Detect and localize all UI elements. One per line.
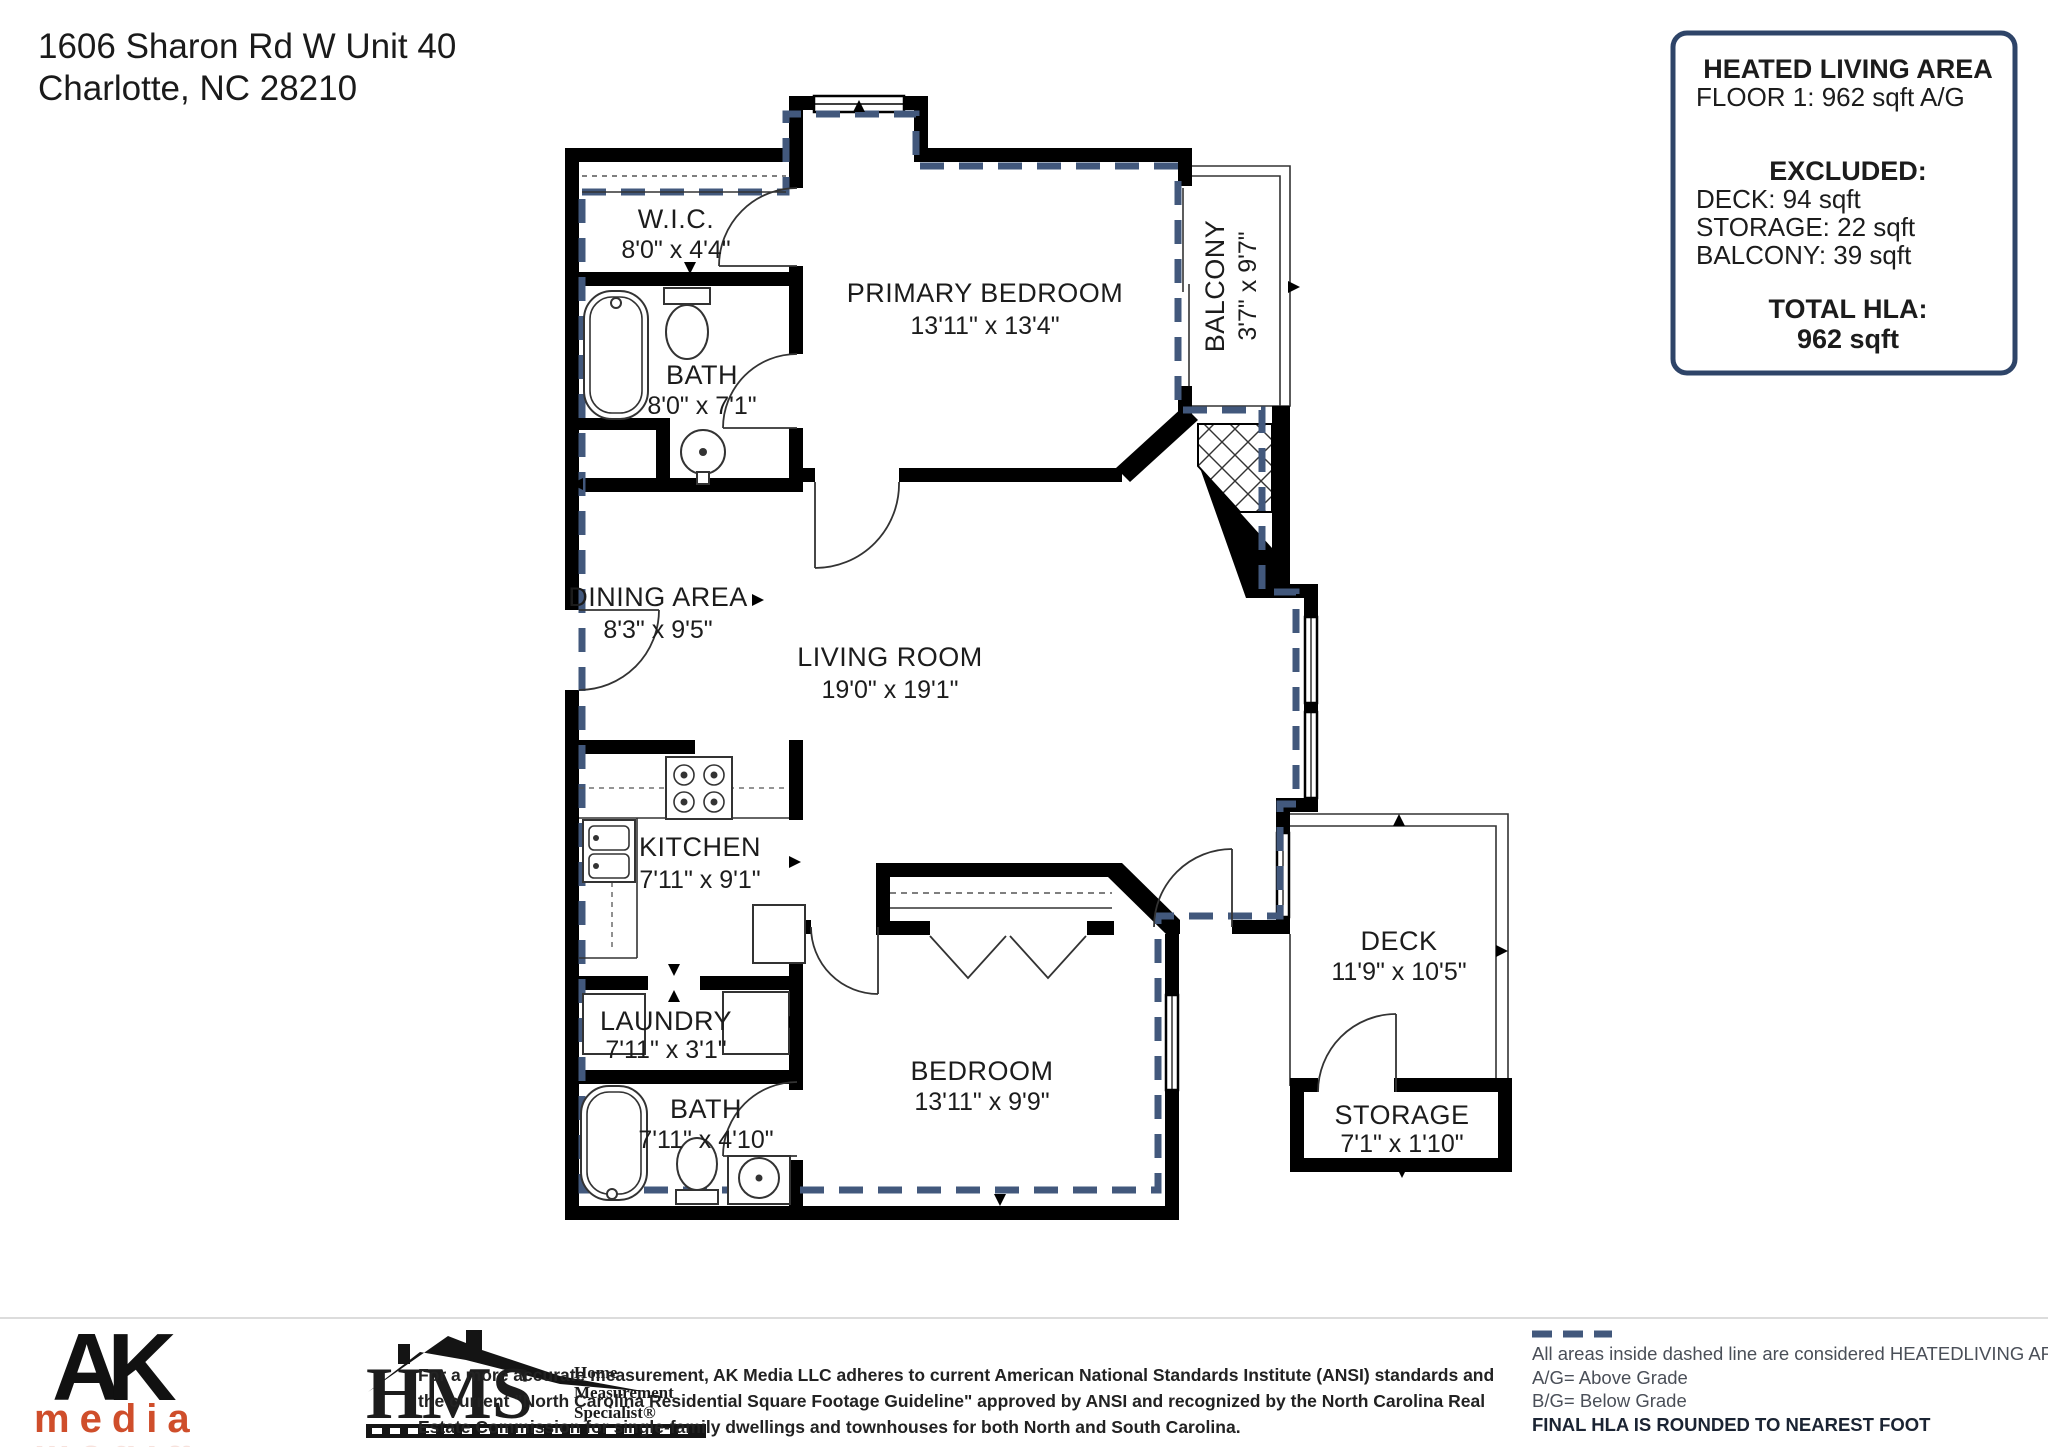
ak-logo-word-reflection: media	[34, 1437, 200, 1447]
hla-total-label: TOTAL HLA:	[1769, 294, 1928, 324]
room-dims-balcony: 3'7" x 9'7"	[1234, 231, 1262, 340]
disclaimer-line2: the current "North Carolina Residential …	[418, 1391, 1485, 1411]
disclaimer-line1: For a more accurate measurement, AK Medi…	[418, 1365, 1494, 1385]
legend-line1: All areas inside dashed line are conside…	[1532, 1343, 2048, 1364]
room-dims-bedroom: 13'11" x 9'9"	[914, 1088, 1049, 1116]
legend-line3: B/G= Below Grade	[1532, 1390, 1687, 1411]
hla-excluded-storage: STORAGE: 22 sqft	[1696, 212, 1916, 242]
room-dims-bath2: 7'11" x 4'10"	[638, 1126, 773, 1154]
room-label-bedroom: BEDROOM	[910, 1056, 1053, 1086]
floorplan-page: 1606 Sharon Rd W Unit 40 Charlotte, NC 2…	[0, 0, 2048, 1447]
hms-logo-h: H	[366, 1353, 424, 1435]
room-label-balcony: BALCONY	[1200, 220, 1230, 353]
room-label-kitchen: KITCHEN	[639, 832, 761, 862]
room-label-dining: DINING AREA	[568, 582, 748, 612]
hla-floor-line: FLOOR 1: 962 sqft A/G	[1696, 82, 1965, 112]
address-line1: 1606 Sharon Rd W Unit 40	[38, 27, 456, 66]
disclaimer-line3: Estate Commission for single-family dwel…	[418, 1417, 1241, 1437]
room-dims-dining: 8'3" x 9'5"	[603, 616, 712, 644]
room-dims-deck: 11'9" x 10'5"	[1331, 958, 1466, 986]
disclaimer: For a more accurate measurement, AK Medi…	[418, 1365, 1494, 1437]
room-dims-living: 19'0" x 19'1"	[821, 676, 958, 704]
floorplan-canvas: 1606 Sharon Rd W Unit 40 Charlotte, NC 2…	[0, 0, 2048, 1447]
legend-line4: FINAL HLA IS ROUNDED TO NEAREST FOOT	[1532, 1414, 1931, 1435]
legend-line2: A/G= Above Grade	[1532, 1367, 1688, 1388]
hla-summary-box: HEATED LIVING AREA FLOOR 1: 962 sqft A/G…	[1673, 33, 2015, 373]
hla-excluded-deck: DECK: 94 sqft	[1696, 184, 1862, 214]
address-line2: Charlotte, NC 28210	[38, 69, 357, 108]
room-label-bath2: BATH	[670, 1094, 742, 1124]
room-label-bath1: BATH	[666, 360, 738, 390]
ak-logo-word: media	[34, 1397, 200, 1441]
room-dims-kitchen: 7'11" x 9'1"	[639, 866, 760, 894]
room-dims-primary: 13'11" x 13'4"	[910, 312, 1059, 340]
room-label-wic: W.I.C.	[638, 204, 715, 234]
room-label-primary: PRIMARY BEDROOM	[847, 278, 1124, 308]
room-label-laundry: LAUNDRY	[600, 1006, 732, 1036]
ak-media-logo: AK media media	[34, 1314, 200, 1447]
room-dims-storage: 7'1" x 1'10"	[1340, 1130, 1463, 1158]
legend: All areas inside dashed line are conside…	[1532, 1334, 2048, 1435]
balcony-slider	[1183, 188, 1189, 386]
hla-title: HEATED LIVING AREA	[1703, 54, 1993, 84]
hla-total-value: 962 sqft	[1797, 324, 1899, 354]
room-dims-wic: 8'0" x 4'4"	[621, 236, 730, 264]
room-label-living: LIVING ROOM	[797, 642, 983, 672]
room-dims-laundry: 7'11" x 3'1"	[605, 1036, 726, 1064]
hla-excluded-title: EXCLUDED:	[1769, 156, 1927, 186]
room-dims-bath1: 8'0" x 7'1"	[647, 392, 756, 420]
hla-excluded-balcony: BALCONY: 39 sqft	[1696, 240, 1912, 270]
room-label-deck: DECK	[1360, 926, 1437, 956]
room-label-storage: STORAGE	[1334, 1100, 1469, 1130]
